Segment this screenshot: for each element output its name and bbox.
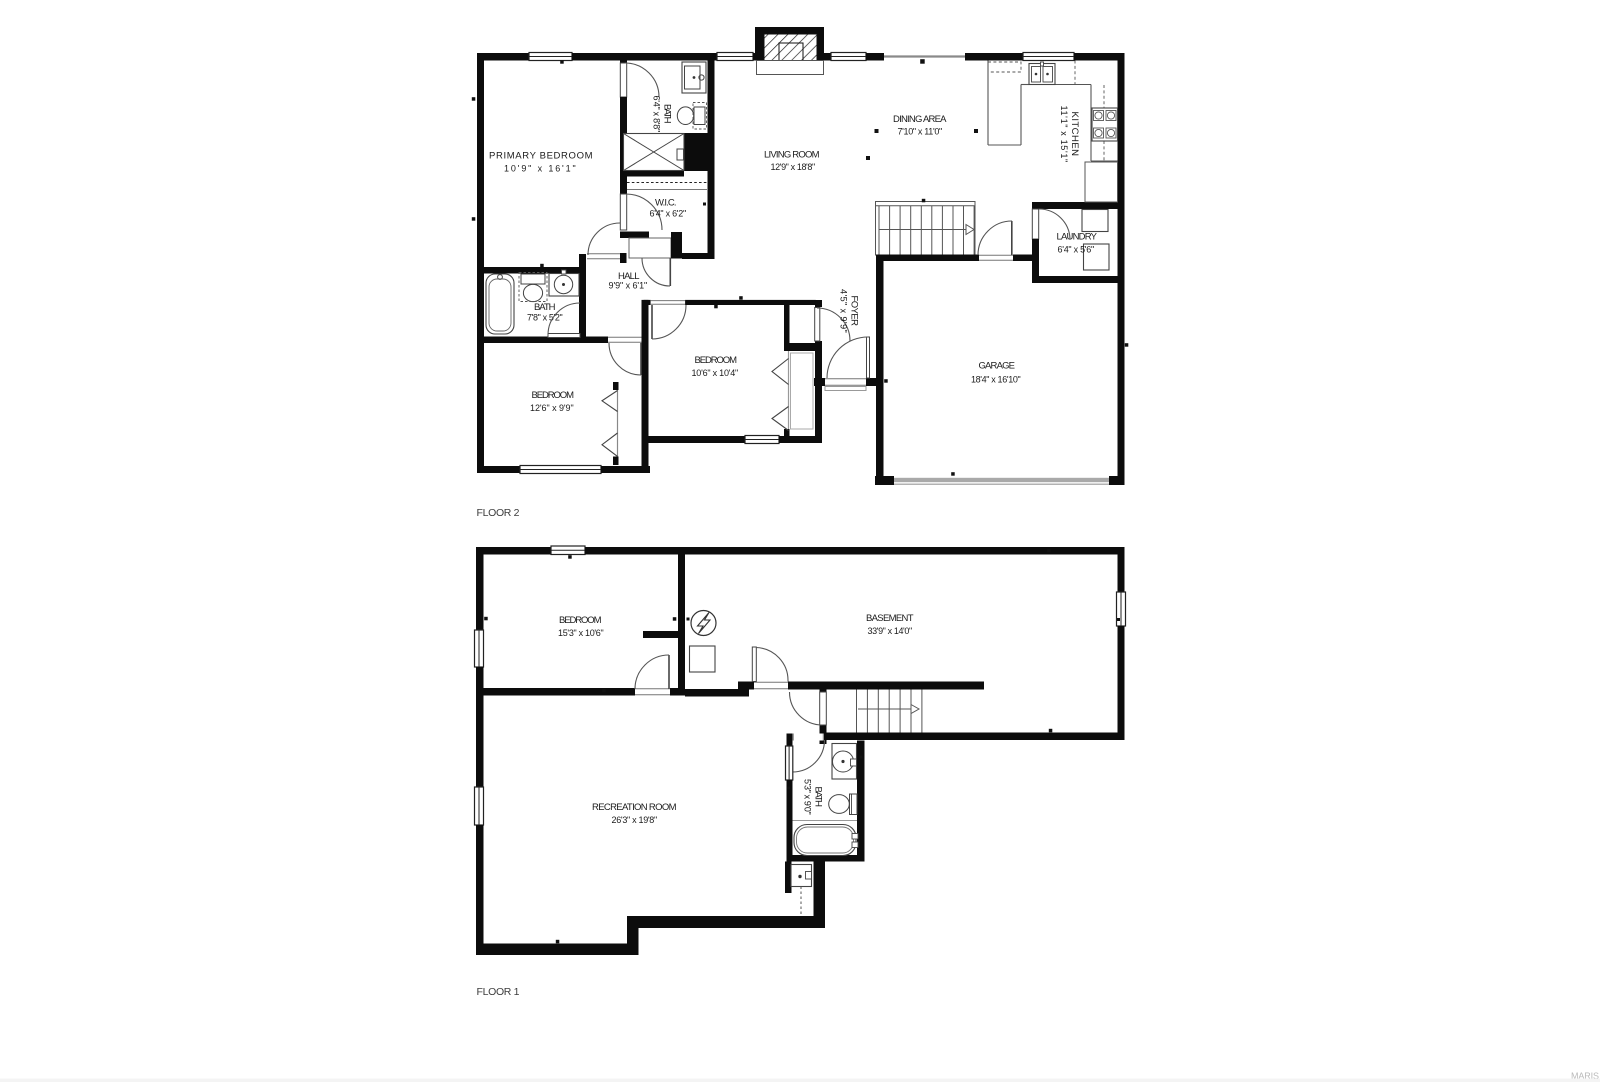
svg-text:7'8" x 5'2": 7'8" x 5'2" (527, 313, 563, 323)
svg-text:10'9" x 16'1": 10'9" x 16'1" (504, 164, 576, 174)
svg-text:12'6" x 9'9": 12'6" x 9'9" (530, 403, 574, 413)
svg-text:FLOOR 1: FLOOR 1 (477, 986, 520, 998)
svg-text:7'10" x 11'0": 7'10" x 11'0" (898, 127, 943, 137)
svg-text:FOYER: FOYER (849, 296, 860, 327)
svg-text:6'4" x 6'2": 6'4" x 6'2" (650, 209, 687, 219)
svg-text:9'9" x 6'1": 9'9" x 6'1" (609, 281, 648, 291)
svg-text:BATH: BATH (534, 302, 556, 313)
svg-text:BATH: BATH (813, 787, 824, 808)
svg-text:LAUNDRY: LAUNDRY (1057, 232, 1098, 243)
svg-text:26'3" x 19'8": 26'3" x 19'8" (612, 815, 658, 825)
svg-text:6'4" x 5'6": 6'4" x 5'6" (1058, 245, 1095, 255)
svg-text:5'3" x 9'0": 5'3" x 9'0" (803, 779, 813, 815)
svg-text:KITCHEN: KITCHEN (1069, 112, 1080, 157)
svg-text:FLOOR 2: FLOOR 2 (477, 507, 520, 519)
svg-text:11'1" x 15'1": 11'1" x 15'1" (1059, 106, 1069, 163)
svg-text:12'9" x 18'8": 12'9" x 18'8" (771, 162, 816, 172)
svg-text:LIVING ROOM: LIVING ROOM (764, 150, 820, 161)
svg-text:33'9" x 14'0": 33'9" x 14'0" (868, 626, 913, 636)
svg-text:10'6" x 10'4": 10'6" x 10'4" (692, 368, 739, 378)
svg-text:4'5" x 9'9": 4'5" x 9'9" (839, 289, 849, 333)
svg-text:18'4" x 16'10": 18'4" x 16'10" (971, 375, 1021, 385)
svg-text:GARAGE: GARAGE (979, 361, 1016, 372)
svg-text:15'3" x 10'6": 15'3" x 10'6" (558, 628, 604, 638)
svg-text:BEDROOM: BEDROOM (559, 615, 602, 626)
svg-text:W.I.C.: W.I.C. (655, 198, 677, 209)
svg-text:BASEMENT: BASEMENT (866, 613, 914, 624)
svg-text:PRIMARY BEDROOM: PRIMARY BEDROOM (489, 151, 593, 162)
svg-text:DINING AREA: DINING AREA (893, 114, 947, 125)
svg-text:6'4" x 8'8": 6'4" x 8'8" (652, 96, 662, 133)
svg-text:BATH: BATH (662, 104, 673, 124)
svg-text:BEDROOM: BEDROOM (532, 390, 575, 401)
svg-text:BEDROOM: BEDROOM (695, 355, 738, 366)
svg-text:RECREATION ROOM: RECREATION ROOM (592, 802, 677, 813)
